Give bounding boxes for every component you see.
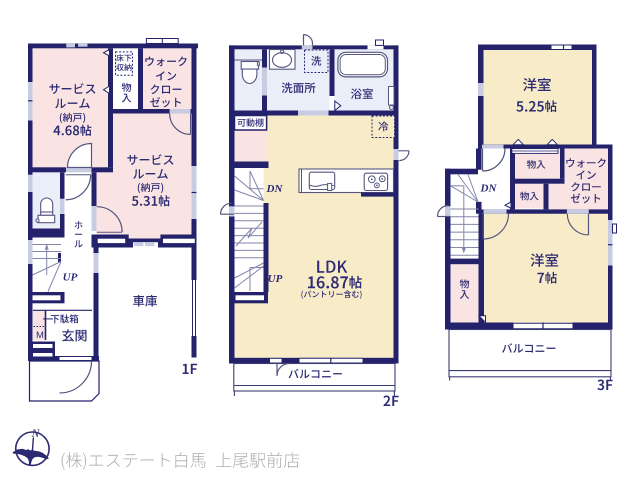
svg-text:N: N bbox=[31, 428, 41, 440]
svg-text:DN: DN bbox=[266, 183, 284, 195]
svg-text:UP: UP bbox=[268, 273, 283, 285]
svg-text:DN: DN bbox=[480, 182, 498, 194]
svg-text:UP: UP bbox=[63, 271, 78, 283]
svg-text:M: M bbox=[36, 330, 44, 341]
